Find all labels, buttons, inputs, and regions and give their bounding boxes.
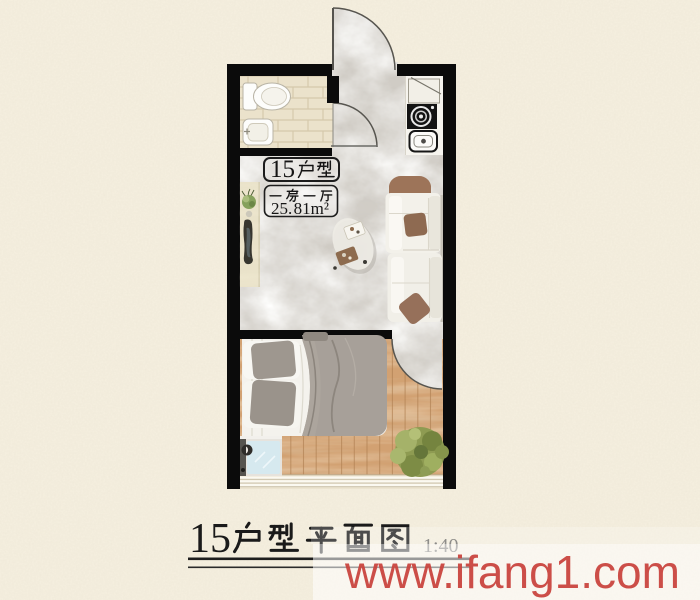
svg-text:15: 15 bbox=[189, 516, 231, 562]
svg-text:www.ifang1.com: www.ifang1.com bbox=[344, 546, 680, 598]
svg-text:15: 15 bbox=[270, 156, 295, 183]
svg-text:25. 81m²: 25. 81m² bbox=[271, 199, 329, 218]
